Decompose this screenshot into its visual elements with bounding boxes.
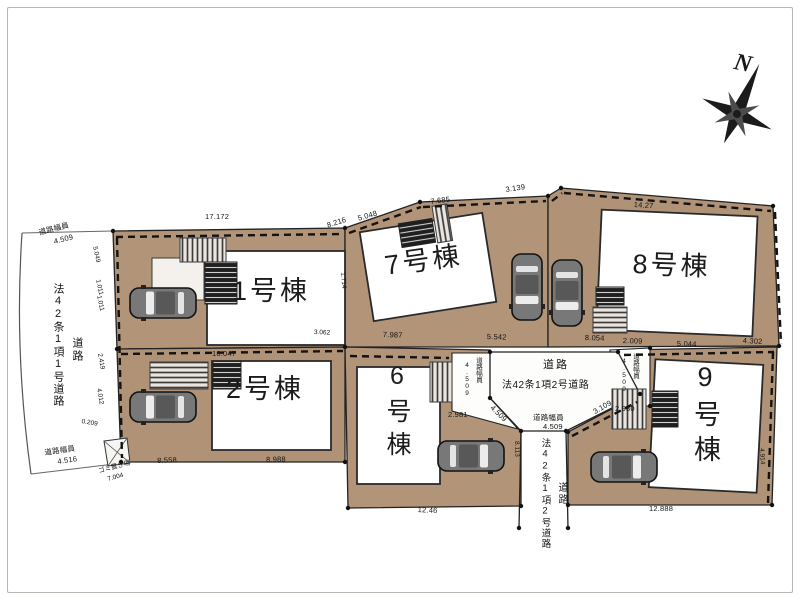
road-center-width-value: 4.509: [543, 423, 563, 431]
dim-label: 8.054: [585, 334, 605, 342]
site-plan: N 1号棟 2号棟 7号棟 8号棟 6号棟 9号棟 道路 法42条1項1号道路 …: [0, 0, 800, 600]
corner-east-label: 道路幅員: [631, 353, 638, 379]
dim-label: 7.987: [383, 331, 403, 339]
road-center-name: 道路: [543, 360, 569, 371]
building-8-label: 8号棟: [632, 251, 711, 281]
dim-label: 2.009: [623, 337, 643, 345]
building-6-label: 6号棟: [384, 362, 409, 464]
dim-label: 8.988: [266, 456, 286, 464]
car-icon: [438, 438, 504, 474]
dim-label: 12.888: [649, 505, 673, 513]
corner-west-value: 4.509: [463, 362, 470, 397]
dim-label: 3.062: [314, 330, 330, 337]
car-icon: [591, 449, 657, 485]
corner-west-label: 道路幅員: [474, 357, 481, 383]
road-center-class: 法42条1項2号道路: [502, 381, 589, 391]
dim-label: 2.981: [448, 411, 468, 419]
steps-lot6: [430, 362, 452, 402]
building-9-label: 9号棟: [691, 362, 718, 470]
dim-label: 14.27: [633, 201, 653, 210]
road-west-curve: [19, 233, 31, 474]
car-icon: [130, 389, 196, 425]
dim-label: 16.047: [212, 350, 236, 358]
road-west-class: 法42条1項1号道路: [52, 283, 63, 407]
dim-label: 8.113: [513, 441, 520, 457]
corner-east-value: 4.509: [620, 358, 627, 393]
dim-label: 5.542: [487, 333, 507, 341]
car-icon: [549, 260, 585, 326]
building-2-label: 2号棟: [226, 376, 304, 403]
dim-label: 4.914: [758, 448, 765, 465]
dim-label: 17.172: [205, 213, 229, 221]
dim-label: 5.044: [677, 340, 697, 348]
dim-label: 4.302: [743, 337, 763, 346]
dim-label: 8.558: [157, 456, 177, 464]
car-icon: [130, 285, 196, 321]
car-icon: [509, 254, 545, 320]
road-south-class: 法42条1項2号道路: [540, 438, 550, 549]
dim-label: 1.714: [339, 272, 347, 289]
road-south-name: 道路: [556, 482, 566, 506]
steps-lot8: [593, 287, 627, 333]
dim-label: 12.46: [418, 506, 438, 515]
road-center-width-label: 道路幅員: [533, 414, 564, 422]
building-1-label: 1号棟: [232, 278, 310, 305]
road-west-name: 道路: [71, 337, 82, 363]
site-plan-canvas: [0, 0, 800, 600]
dim-label: 2.980: [615, 405, 635, 413]
